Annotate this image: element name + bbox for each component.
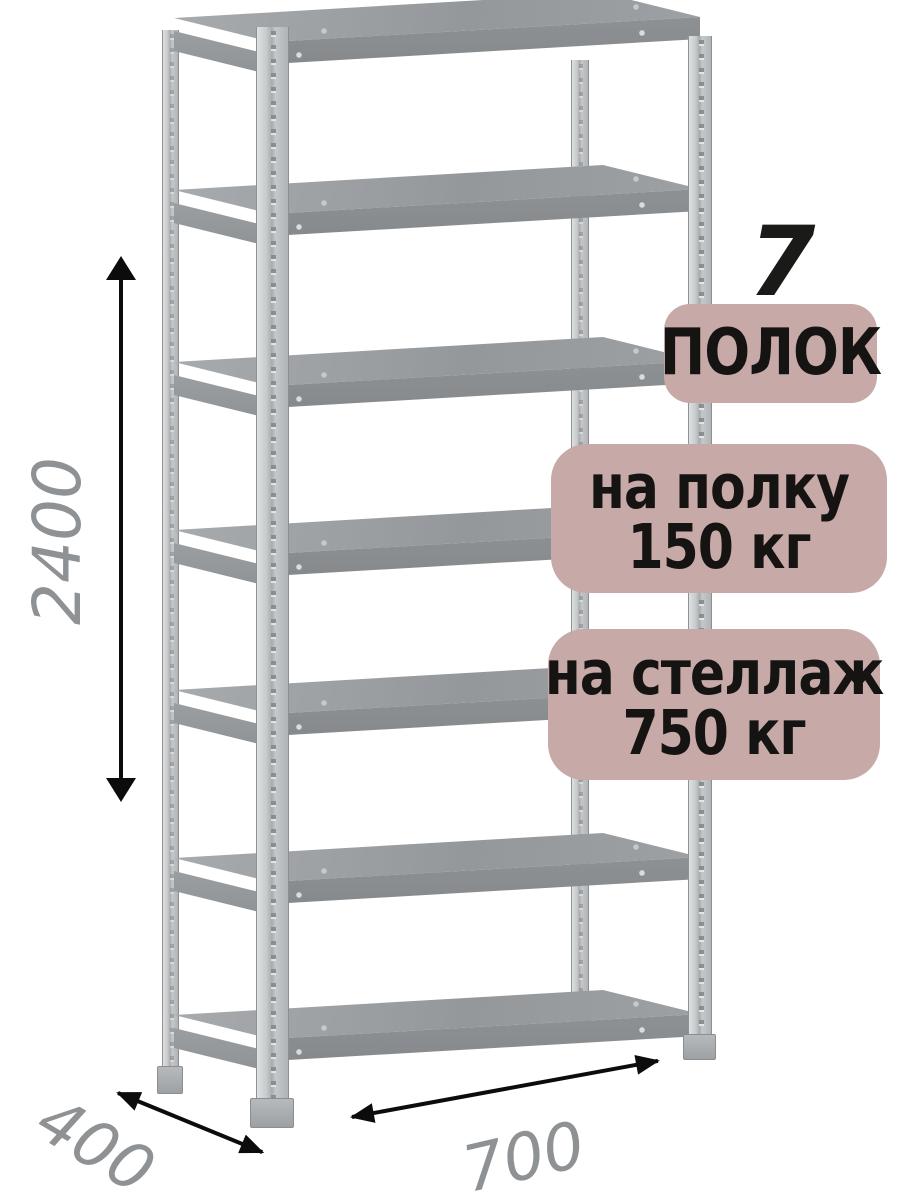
shelf	[174, 990, 700, 1072]
shelf-count-badge: ПОЛОК	[664, 304, 877, 403]
product-image: 2400 400 700 7 ПОЛОК на полку 150 кг на …	[0, 0, 900, 1200]
shelf-count-badge-label: ПОЛОК	[660, 317, 881, 390]
height-dimension-arrow-icon	[105, 256, 137, 802]
rack-foot-front-left	[250, 1098, 294, 1128]
rack-post-front-left	[256, 27, 289, 1125]
per-rack-load-badge: на стеллаж 750 кг	[548, 629, 880, 780]
arrow-line	[119, 272, 123, 786]
arrow-head-up-icon	[106, 256, 136, 280]
height-dimension-label: 2400	[21, 448, 93, 634]
width-dimension-label: 700	[438, 1103, 611, 1200]
per-rack-load-line2: 750 кг	[622, 699, 805, 770]
shelf	[174, 833, 700, 915]
shelf	[174, 337, 700, 419]
arrow-head-down-icon	[106, 778, 136, 802]
per-shelf-load-badge: на полку 150 кг	[551, 444, 887, 593]
shelf	[174, 0, 700, 75]
shelf	[174, 165, 700, 247]
shelf-count-number: 7	[740, 214, 824, 310]
per-shelf-load-line2: 150 кг	[627, 513, 810, 584]
depth-dimension-label: 400	[9, 1074, 180, 1200]
rack-foot-front-right	[683, 1034, 716, 1060]
